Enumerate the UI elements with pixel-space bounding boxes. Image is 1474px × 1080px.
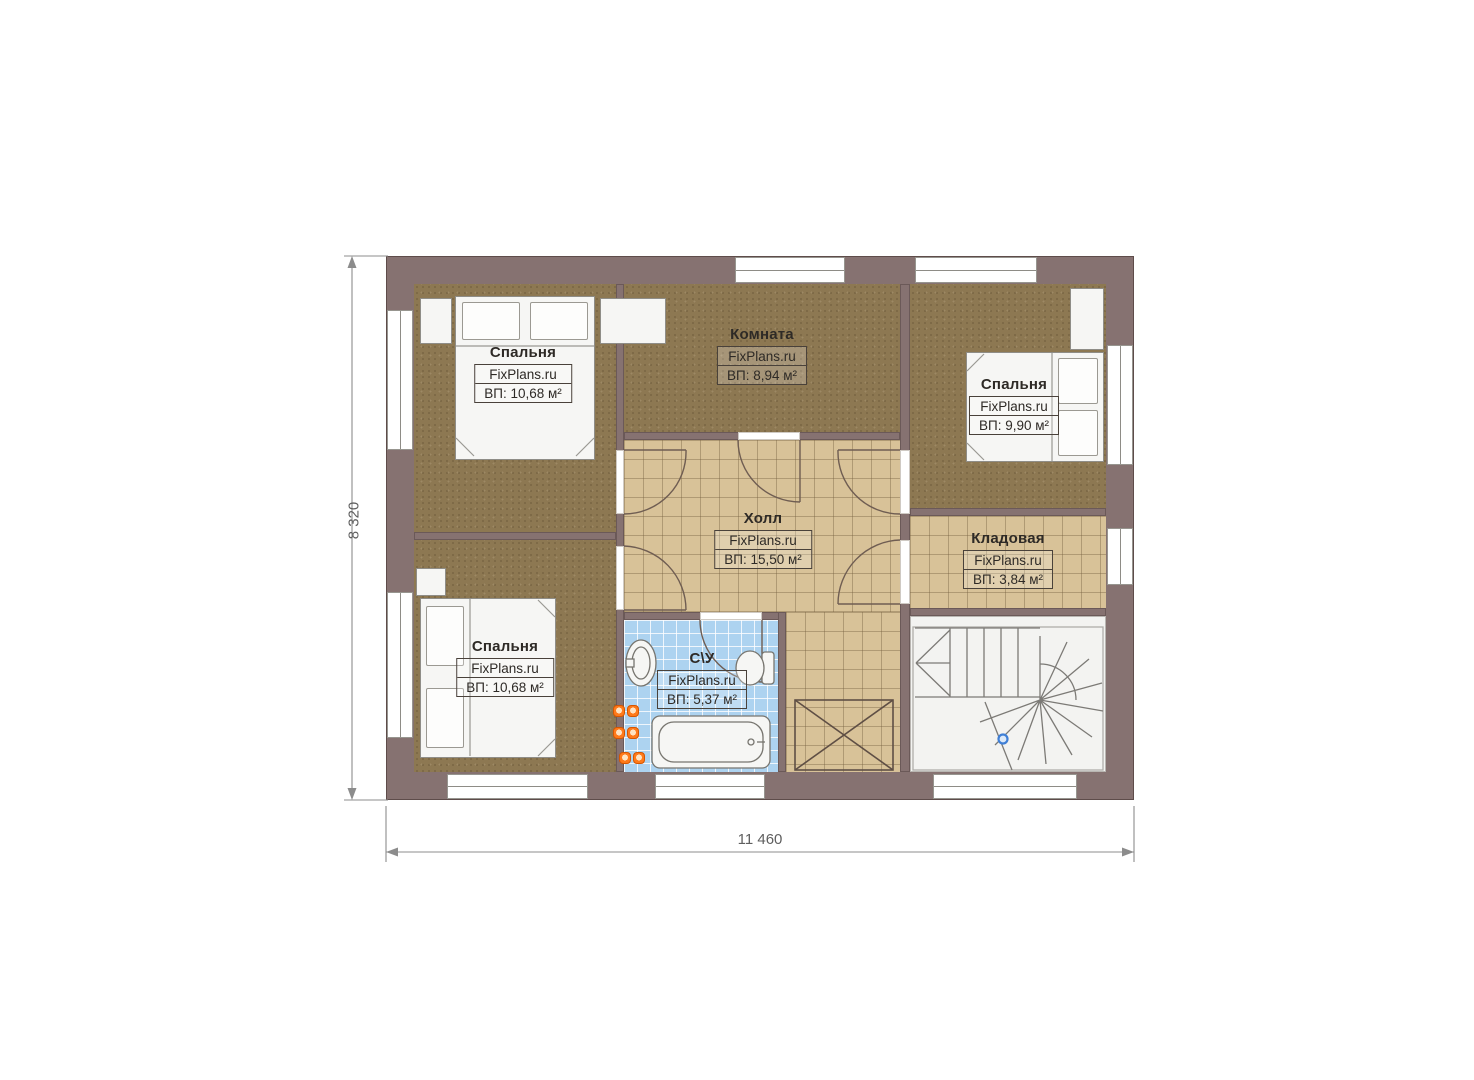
window-bottom-3 <box>933 774 1077 799</box>
wall-left-column <box>616 284 624 772</box>
room-label-room-top-middle: Комната FixPlans.ru ВП: 8,94 м² <box>717 326 807 385</box>
stairwell <box>910 616 1106 772</box>
pillow <box>426 688 464 748</box>
room-name: Спальня <box>474 344 572 361</box>
floor-plan-canvas: Спальня FixPlans.ru ВП: 10,68 м² Комната… <box>0 0 1474 1080</box>
room-info-box: FixPlans.ru ВП: 3,84 м² <box>963 550 1053 589</box>
door-opening-bathroom <box>700 612 762 620</box>
door-opening-bedroom-top-right <box>900 450 910 514</box>
room-info-box: FixPlans.ru ВП: 9,90 м² <box>969 396 1059 435</box>
pillow <box>530 302 588 340</box>
window-bottom-2 <box>655 774 765 799</box>
room-name: Кладовая <box>963 530 1053 547</box>
radiator-dot <box>627 705 639 717</box>
brand-watermark: FixPlans.ru <box>718 347 806 366</box>
room-label-hall: Холл FixPlans.ru ВП: 15,50 м² <box>714 510 812 569</box>
room-area: ВП: 9,90 м² <box>970 416 1058 434</box>
room-name: Спальня <box>969 376 1059 393</box>
dimension-width-label: 11 460 <box>720 831 800 848</box>
wall-bathroom-right <box>778 612 786 772</box>
radiator-dot <box>613 705 625 717</box>
room-name: Комната <box>717 326 807 343</box>
room-label-storage: Кладовая FixPlans.ru ВП: 3,84 м² <box>963 530 1053 589</box>
radiator-dot <box>627 727 639 739</box>
window-left-2 <box>387 592 413 738</box>
brand-watermark: FixPlans.ru <box>658 671 746 690</box>
room-area: ВП: 3,84 м² <box>964 570 1052 588</box>
room-area: ВП: 8,94 м² <box>718 366 806 384</box>
brand-watermark: FixPlans.ru <box>457 659 553 678</box>
room-name: Холл <box>714 510 812 527</box>
room-info-box: FixPlans.ru ВП: 10,68 м² <box>456 658 554 697</box>
room-label-bathroom: С\У FixPlans.ru ВП: 5,37 м² <box>657 650 747 709</box>
room-area: ВП: 10,68 м² <box>475 384 571 402</box>
door-opening-bedroom-bottom-left <box>616 546 624 610</box>
pillow <box>462 302 520 340</box>
corridor <box>786 612 900 772</box>
room-name: Спальня <box>456 638 554 655</box>
room-area: ВП: 5,37 м² <box>658 690 746 708</box>
brand-watermark: FixPlans.ru <box>964 551 1052 570</box>
window-left-1 <box>387 310 413 450</box>
wardrobe <box>1070 288 1104 350</box>
brand-watermark: FixPlans.ru <box>715 531 811 550</box>
room-label-bedroom-bottom-left: Спальня FixPlans.ru ВП: 10,68 м² <box>456 638 554 697</box>
brand-watermark: FixPlans.ru <box>475 365 571 384</box>
room-info-box: FixPlans.ru ВП: 10,68 м² <box>474 364 572 403</box>
window-right-1 <box>1107 345 1133 465</box>
wall-right-column <box>900 284 910 772</box>
wall-storage-stairs <box>910 608 1106 616</box>
wall-bedroom-storage <box>910 508 1106 516</box>
radiator-dot <box>633 752 645 764</box>
room-area: ВП: 15,50 м² <box>715 550 811 568</box>
room-name: С\У <box>657 650 747 667</box>
wall-between-left-bedrooms <box>414 532 616 540</box>
window-right-2 <box>1107 528 1133 585</box>
room-info-box: FixPlans.ru ВП: 15,50 м² <box>714 530 812 569</box>
radiator-dot <box>619 752 631 764</box>
room-area: ВП: 10,68 м² <box>457 678 553 696</box>
window-top-1 <box>735 257 845 283</box>
dresser <box>600 298 666 344</box>
room-info-box: FixPlans.ru ВП: 8,94 м² <box>717 346 807 385</box>
door-opening-bedroom-top-left <box>616 450 624 514</box>
door-opening-storage <box>900 540 910 604</box>
brand-watermark: FixPlans.ru <box>970 397 1058 416</box>
pillow <box>1058 410 1098 456</box>
room-label-bedroom-top-right: Спальня FixPlans.ru ВП: 9,90 м² <box>969 376 1059 435</box>
dimension-height-label: 8 320 <box>346 491 363 551</box>
window-top-2 <box>915 257 1037 283</box>
nightstand <box>420 298 452 344</box>
door-opening-room <box>738 432 800 440</box>
room-info-box: FixPlans.ru ВП: 5,37 м² <box>657 670 747 709</box>
window-bottom-1 <box>447 774 588 799</box>
nightstand <box>416 568 446 596</box>
radiator-dot <box>613 727 625 739</box>
room-label-bedroom-top-left: Спальня FixPlans.ru ВП: 10,68 м² <box>474 344 572 403</box>
pillow <box>1058 358 1098 404</box>
